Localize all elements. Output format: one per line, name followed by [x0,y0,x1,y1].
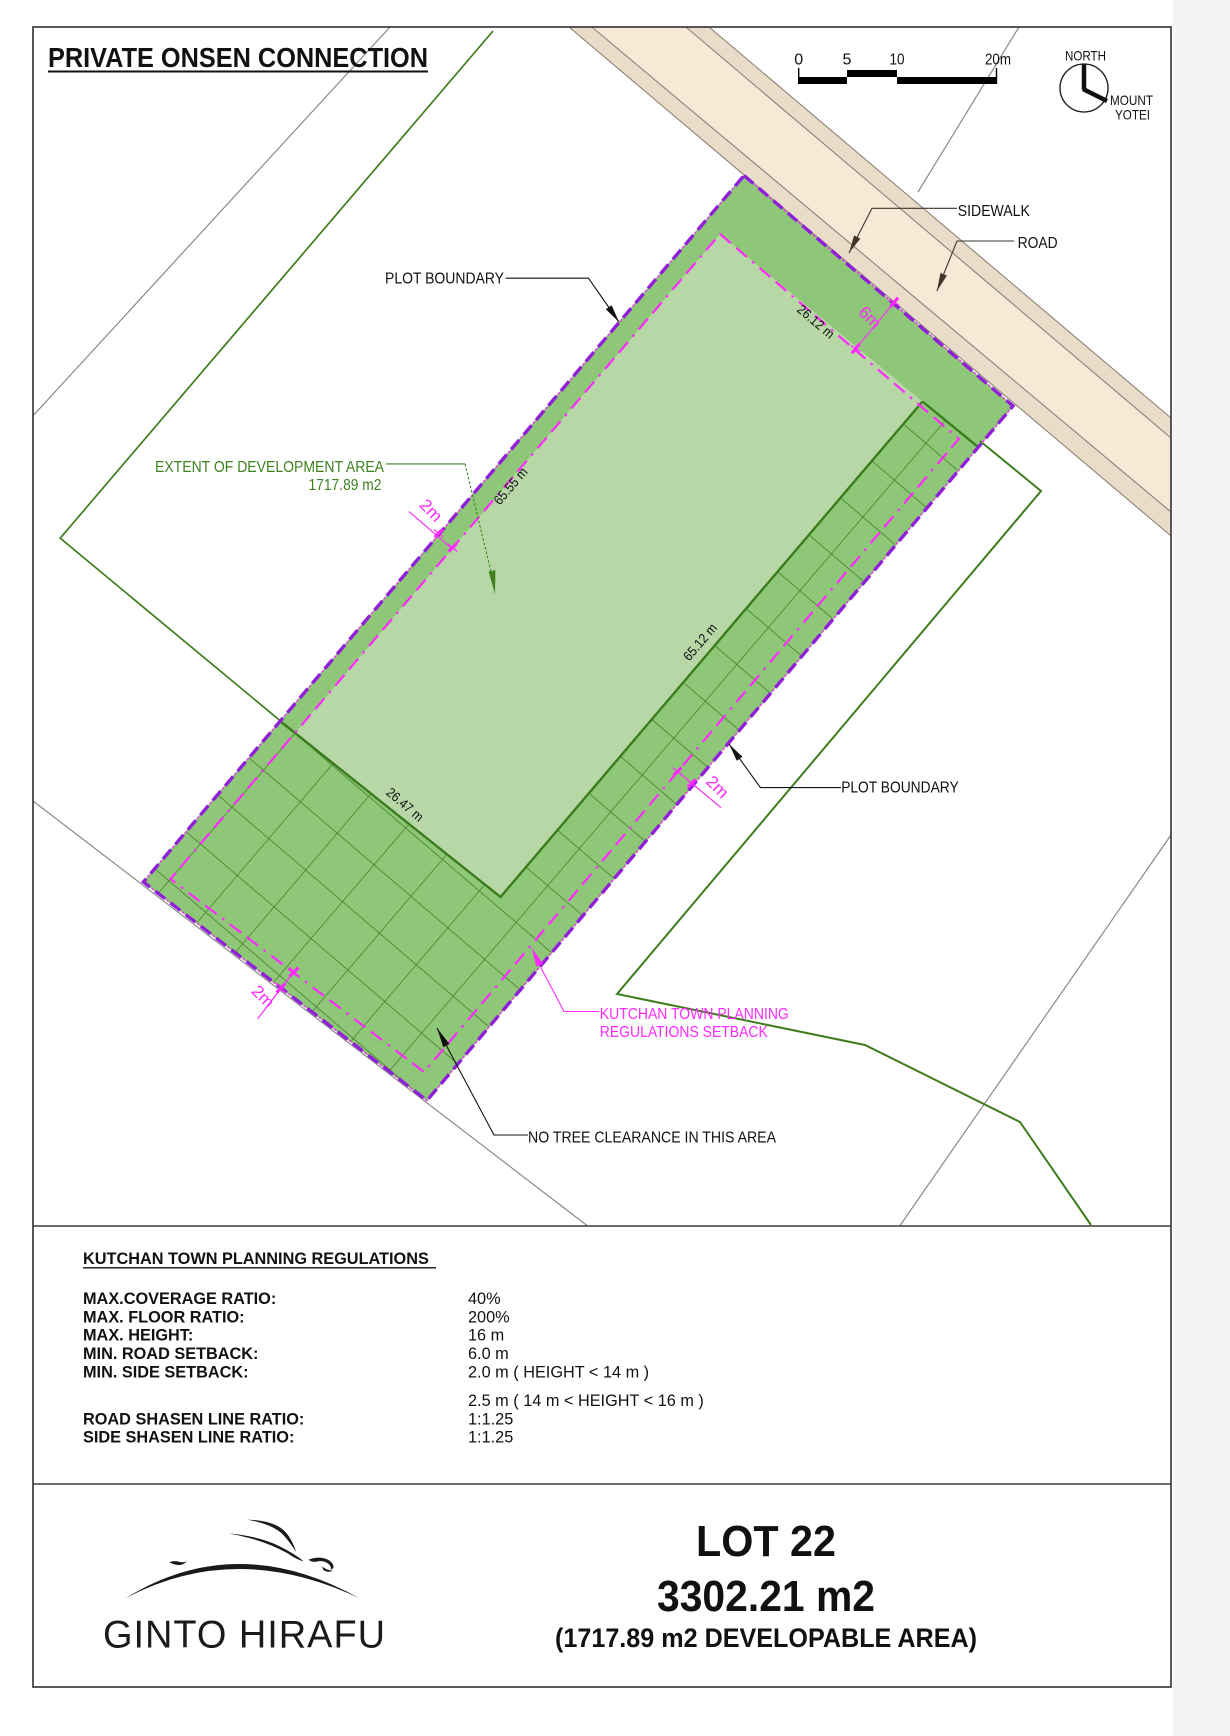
svg-text:ROAD: ROAD [1018,235,1058,252]
svg-text:MIN. SIDE SETBACK:: MIN. SIDE SETBACK: [83,1363,249,1381]
svg-text:PLOT BOUNDARY: PLOT BOUNDARY [385,271,504,288]
svg-text:MIN. ROAD SETBACK:: MIN. ROAD SETBACK: [83,1345,258,1363]
svg-text:YOTEI: YOTEI [1115,106,1150,122]
svg-text:KUTCHAN TOWN PLANNING: KUTCHAN TOWN PLANNING [600,1006,789,1023]
svg-text:REGULATIONS SETBACK: REGULATIONS SETBACK [600,1024,768,1041]
svg-text:1:1.25: 1:1.25 [468,1410,513,1428]
svg-text:NORTH: NORTH [1065,47,1106,63]
svg-text:LOT 22: LOT 22 [696,1517,836,1566]
svg-text:16 m: 16 m [468,1327,504,1345]
svg-text:(1717.89 m2 DEVELOPABLE AREA): (1717.89 m2 DEVELOPABLE AREA) [555,1623,977,1653]
svg-text:MAX. HEIGHT:: MAX. HEIGHT: [83,1327,193,1345]
svg-text:6.0 m: 6.0 m [468,1345,509,1363]
svg-text:5: 5 [843,51,852,68]
svg-text:GINTO HIRAFU: GINTO HIRAFU [103,1614,386,1657]
svg-text:PRIVATE ONSEN CONNECTION: PRIVATE ONSEN CONNECTION [48,42,428,73]
svg-text:KUTCHAN TOWN PLANNING REGULATI: KUTCHAN TOWN PLANNING REGULATIONS [83,1250,429,1268]
svg-text:3302.21 m2: 3302.21 m2 [657,1572,875,1621]
svg-text:200%: 200% [468,1308,510,1326]
svg-text:2.5 m ( 14 m < HEIGHT < 16 m ): 2.5 m ( 14 m < HEIGHT < 16 m ) [468,1392,704,1410]
svg-text:2.0 m ( HEIGHT < 14 m ): 2.0 m ( HEIGHT < 14 m ) [468,1363,649,1381]
svg-text:SIDEWALK: SIDEWALK [958,203,1030,220]
svg-text:1:1.25: 1:1.25 [468,1429,513,1447]
svg-text:NO TREE CLEARANCE IN THIS AREA: NO TREE CLEARANCE IN THIS AREA [528,1129,776,1146]
svg-text:EXTENT OF DEVELOPMENT AREA: EXTENT OF DEVELOPMENT AREA [155,459,384,476]
svg-text:40%: 40% [468,1290,501,1308]
svg-text:PLOT BOUNDARY: PLOT BOUNDARY [841,780,959,797]
svg-text:10: 10 [890,51,905,68]
svg-text:20m: 20m [985,51,1011,68]
svg-text:SIDE SHASEN LINE RATIO:: SIDE SHASEN LINE RATIO: [83,1429,294,1447]
svg-text:MAX. FLOOR RATIO:: MAX. FLOOR RATIO: [83,1308,245,1326]
svg-text:1717.89 m2: 1717.89 m2 [309,477,382,494]
svg-text:ROAD SHASEN LINE RATIO:: ROAD SHASEN LINE RATIO: [83,1410,304,1428]
svg-text:0: 0 [794,51,803,68]
svg-text:MAX.COVERAGE RATIO:: MAX.COVERAGE RATIO: [83,1290,276,1308]
